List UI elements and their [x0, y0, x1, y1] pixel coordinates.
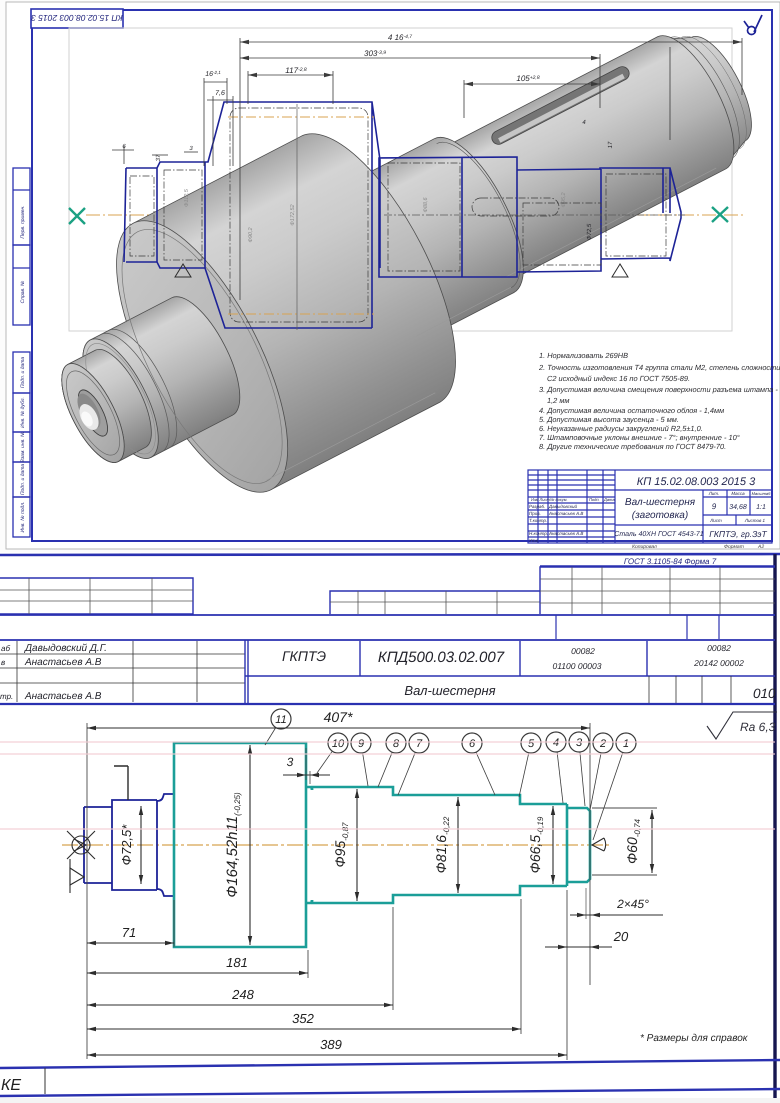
svg-text:Подп. и дата: Подп. и дата — [20, 357, 26, 389]
svg-text:Анастасьев А.В: Анастасьев А.В — [548, 531, 583, 536]
svg-text:6. Неуказанные радиусы закр: 6. Неуказанные радиусы закруглений R2,5±… — [539, 424, 703, 433]
svg-text:Дата: Дата — [603, 497, 615, 502]
svg-text:Вал-шестерня: Вал-шестерня — [625, 497, 696, 508]
svg-text:Подп. и дата: Подп. и дата — [20, 464, 26, 496]
svg-text:8. Другие технические требо: 8. Другие технические требования по ГОСТ… — [539, 442, 726, 451]
svg-text:7. Штамповочные уклоны внешние: 7. Штамповочные уклоны внешние - 7°; вну… — [539, 433, 740, 442]
svg-text:Анастасьев А.В: Анастасьев А.В — [24, 657, 102, 668]
svg-text:3: 3 — [576, 737, 583, 749]
svg-text:6: 6 — [469, 738, 476, 750]
svg-text:37: 37 — [155, 154, 162, 161]
svg-text:Ф172,52: Ф172,52 — [290, 204, 296, 225]
svg-text:КЕ: КЕ — [1, 1077, 21, 1094]
svg-text:4: 4 — [553, 737, 559, 749]
svg-text:тр.: тр. — [0, 692, 13, 701]
svg-text:248: 248 — [231, 987, 254, 1002]
svg-text:389: 389 — [320, 1037, 342, 1052]
svg-text:Т.контр.: Т.контр. — [529, 518, 547, 523]
svg-text:С2 исходный индекс 16 по: С2 исходный индекс 16 по ГОСТ 7505-89. — [547, 374, 690, 383]
svg-text:00082: 00082 — [571, 646, 595, 656]
svg-text:Ф72,5*: Ф72,5* — [119, 824, 134, 866]
svg-text:Перв. примен.: Перв. примен. — [20, 205, 26, 238]
svg-text:* Размеры для справок: * Размеры для справок — [640, 1033, 749, 1044]
svg-text:КПД500.03.02.007: КПД500.03.02.007 — [378, 649, 505, 666]
svg-text:181: 181 — [226, 955, 248, 970]
svg-text:Справ. №: Справ. № — [20, 280, 26, 303]
svg-text:Анастасьев А.В: Анастасьев А.В — [548, 511, 583, 516]
svg-text:407*: 407* — [324, 709, 353, 725]
svg-text:3. Допустимая величина смещени: 3. Допустимая величина смещения поверхно… — [539, 385, 778, 394]
svg-text:9: 9 — [358, 738, 364, 750]
svg-text:3: 3 — [287, 755, 294, 769]
svg-text:Утв.: Утв. — [529, 538, 539, 543]
svg-text:в: в — [1, 658, 5, 667]
svg-text:01100 00003: 01100 00003 — [552, 661, 601, 671]
svg-text:Масса: Масса — [731, 491, 745, 496]
svg-text:Подп.: Подп. — [589, 497, 600, 502]
svg-text:7: 7 — [416, 738, 423, 750]
svg-text:1:1: 1:1 — [756, 504, 766, 511]
svg-text:Давыдовский: Давыдовский — [548, 504, 577, 509]
svg-text:Ф112,5: Ф112,5 — [184, 188, 190, 207]
svg-text:ГОСТ 3.1105-84 Форма 7: ГОСТ 3.1105-84 Форма 7 — [624, 557, 717, 566]
svg-text:5. Допустимая высота заусен: 5. Допустимая высота заусенца - 5 мм. — [539, 415, 679, 424]
svg-text:Лист: Лист — [709, 518, 722, 523]
svg-text:Ф72,5: Ф72,5 — [586, 223, 593, 240]
svg-text:1. Нормализовать 269НВ: 1. Нормализовать 269НВ — [539, 351, 628, 360]
svg-text:1,2 мм: 1,2 мм — [547, 396, 569, 405]
svg-text:10: 10 — [332, 738, 345, 750]
svg-text:Анастасьев А.В: Анастасьев А.В — [24, 691, 102, 702]
svg-text:Формат: Формат — [724, 544, 744, 550]
svg-text:11: 11 — [275, 714, 286, 726]
svg-text:2. Точность изготовления Т4 гр: 2. Точность изготовления Т4 группа стали… — [538, 363, 780, 372]
svg-text:Инв. № дубл.: Инв. № дубл. — [20, 397, 26, 428]
svg-text:№ докум.: № докум. — [550, 497, 568, 502]
svg-text:34,68: 34,68 — [729, 504, 747, 511]
svg-text:4. Допустимая величина остаточ: 4. Допустимая величина остаточного облоя… — [539, 406, 724, 415]
svg-text:Н.контр.: Н.контр. — [529, 531, 548, 536]
svg-text:9: 9 — [712, 502, 717, 511]
svg-text:Ф90,2: Ф90,2 — [248, 227, 254, 242]
svg-text:Вал-шестерня: Вал-шестерня — [404, 683, 495, 698]
svg-text:Изм Лист: Изм Лист — [531, 497, 550, 502]
svg-text:17: 17 — [607, 141, 614, 148]
svg-text:Масштаб: Масштаб — [752, 491, 771, 496]
svg-text:Разраб.: Разраб. — [529, 504, 545, 509]
svg-text:20: 20 — [613, 929, 629, 944]
svg-text:71: 71 — [122, 925, 136, 940]
svg-text:КП 15.02.08.003 2015 3: КП 15.02.08.003 2015 3 — [637, 476, 756, 488]
svg-text:Взам. инв. №: Взам. инв. № — [20, 431, 26, 463]
svg-text:352: 352 — [292, 1011, 314, 1026]
svg-text:ГКПТЭ, гр.ЗэТ: ГКПТЭ, гр.ЗэТ — [709, 529, 767, 539]
svg-text:Ф88,6: Ф88,6 — [423, 197, 429, 213]
svg-text:Инв. № подл.: Инв. № подл. — [20, 501, 26, 532]
svg-text:Копировал: Копировал — [632, 544, 657, 550]
svg-text:8: 8 — [393, 738, 400, 750]
svg-text:Ф95,2: Ф95,2 — [561, 192, 567, 207]
svg-text:2×45°: 2×45° — [616, 897, 649, 911]
svg-text:Сталь 40ХН ГОСТ 4543-71: Сталь 40ХН ГОСТ 4543-71 — [614, 531, 704, 538]
svg-text:00082: 00082 — [707, 643, 731, 653]
svg-text:А2: А2 — [757, 544, 764, 550]
svg-text:1: 1 — [623, 738, 629, 750]
svg-text:(заготовка): (заготовка) — [632, 510, 688, 521]
svg-text:Ra 6,3: Ra 6,3 — [740, 720, 776, 734]
svg-text:5: 5 — [528, 738, 535, 750]
svg-text:20142 00002: 20142 00002 — [693, 658, 744, 668]
svg-text:Давыдовский Д.Г.: Давыдовский Д.Г. — [24, 643, 107, 654]
svg-text:аб: аб — [1, 644, 10, 653]
svg-text:Пров.: Пров. — [529, 511, 541, 516]
svg-text:010: 010 — [753, 686, 776, 701]
svg-text:Листов 1: Листов 1 — [744, 518, 766, 523]
svg-text:Лит.: Лит. — [708, 491, 720, 496]
svg-text:2: 2 — [599, 738, 606, 750]
svg-text:КП 15.02.08.003 2015 3: КП 15.02.08.003 2015 3 — [31, 13, 123, 23]
svg-text:7,6: 7,6 — [215, 90, 225, 97]
svg-text:ГКПТЭ: ГКПТЭ — [282, 648, 326, 664]
